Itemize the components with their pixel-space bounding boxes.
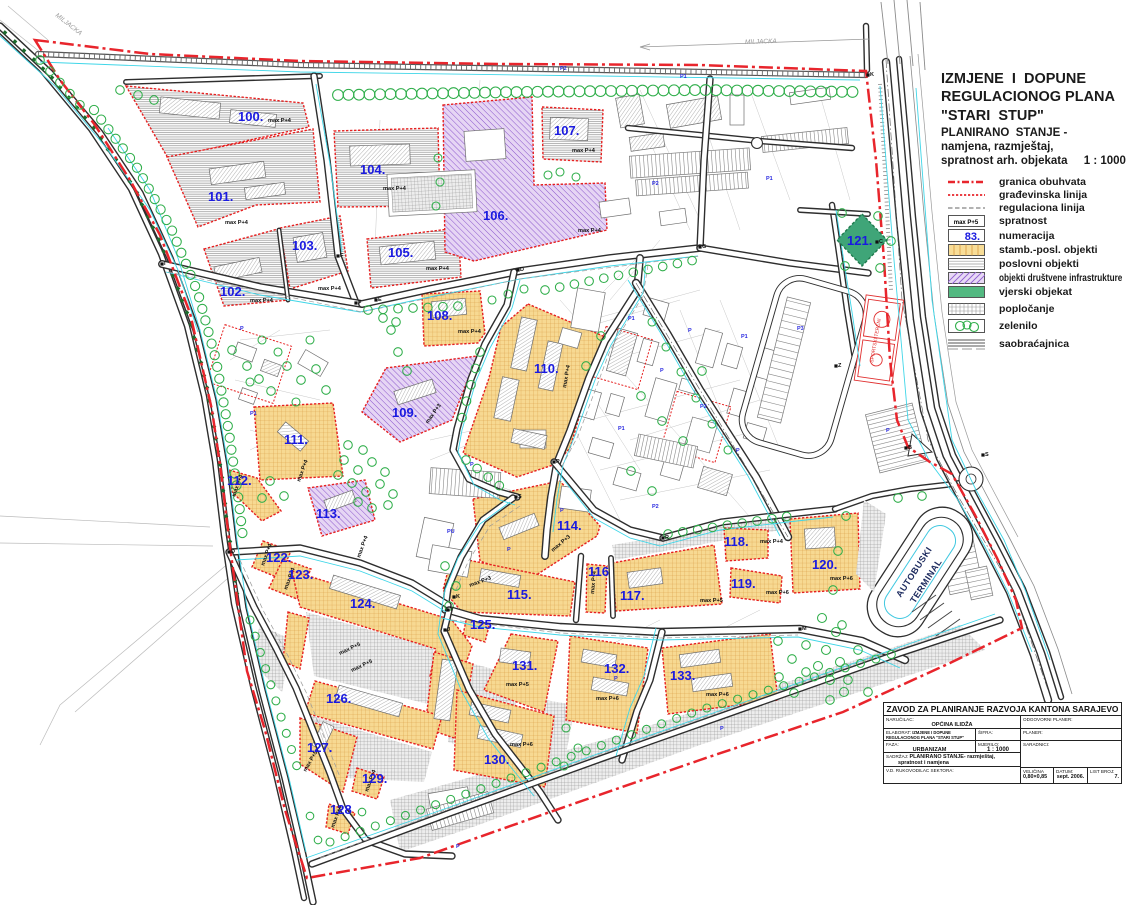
svg-text:max P+6: max P+6 <box>706 692 729 698</box>
svg-text:117.: 117. <box>620 588 645 603</box>
svg-text:P: P <box>507 547 511 553</box>
svg-text:105.: 105. <box>388 245 413 260</box>
svg-text:P3: P3 <box>797 326 804 332</box>
svg-text:max P+6: max P+6 <box>596 696 619 702</box>
svg-text:P: P <box>456 844 460 850</box>
svg-text:max P+4: max P+4 <box>572 148 596 154</box>
svg-text:126.: 126. <box>326 691 351 706</box>
svg-text:P2: P2 <box>652 504 659 510</box>
svg-text:max P+4: max P+4 <box>458 329 482 335</box>
svg-text:133.: 133. <box>670 668 695 683</box>
svg-text:107.: 107. <box>554 123 579 138</box>
svg-text:max P+4: max P+4 <box>225 220 249 226</box>
svg-text:P: P <box>560 508 564 514</box>
svg-text:103.: 103. <box>292 238 317 253</box>
svg-text:max P+6: max P+6 <box>830 576 853 582</box>
svg-text:P1: P1 <box>741 334 748 340</box>
svg-text:K: K <box>456 594 460 600</box>
svg-text:C: C <box>879 239 883 245</box>
svg-text:max P+5: max P+5 <box>954 220 979 226</box>
svg-text:P1: P1 <box>628 316 635 322</box>
svg-text:122.: 122. <box>266 550 291 565</box>
svg-text:114.: 114. <box>557 518 582 533</box>
svg-text:104.: 104. <box>360 162 385 177</box>
svg-text:111.: 111. <box>284 432 308 447</box>
svg-text:max P+4: max P+4 <box>356 534 370 558</box>
svg-text:max P+4: max P+4 <box>268 118 292 124</box>
svg-text:J: J <box>447 627 450 633</box>
svg-text:P: P <box>240 326 244 332</box>
svg-text:MILJACKA: MILJACKA <box>745 38 777 46</box>
svg-text:max P+4: max P+4 <box>426 266 450 272</box>
svg-text:max P+6: max P+6 <box>510 742 533 748</box>
svg-text:127.: 127. <box>307 740 332 755</box>
svg-text:113.: 113. <box>316 506 341 521</box>
svg-text:PU: PU <box>447 529 455 535</box>
svg-text:P1: P1 <box>618 426 625 432</box>
svg-text:max P+5: max P+5 <box>506 682 529 688</box>
svg-text:max P+5: max P+5 <box>700 598 723 604</box>
svg-text:108.: 108. <box>427 308 452 323</box>
svg-text:P: P <box>736 448 740 454</box>
svg-text:128: 128 <box>330 802 352 817</box>
svg-text:G: G <box>702 244 706 250</box>
svg-text:MILJACKA: MILJACKA <box>54 12 83 37</box>
svg-text:K: K <box>870 72 874 78</box>
svg-text:130.: 130. <box>484 752 509 767</box>
svg-text:max P+4: max P+4 <box>383 186 407 192</box>
svg-text:P1: P1 <box>680 74 687 80</box>
svg-text:129.: 129. <box>362 771 387 786</box>
svg-text:100.: 100. <box>238 109 263 124</box>
svg-text:131.: 131. <box>512 658 537 673</box>
svg-text:125.: 125. <box>470 617 495 632</box>
svg-text:E: E <box>378 297 382 303</box>
svg-text:118.: 118. <box>724 534 749 549</box>
svg-text:Z: Z <box>838 363 842 369</box>
svg-text:102.: 102. <box>220 284 245 299</box>
svg-text:max P+4: max P+4 <box>760 539 784 545</box>
svg-text:D: D <box>231 549 235 555</box>
svg-text:P2: P2 <box>700 404 707 410</box>
svg-text:max P+4: max P+4 <box>318 286 342 292</box>
svg-text:P: P <box>886 428 890 434</box>
svg-text:P: P <box>688 328 692 334</box>
svg-text:112.: 112. <box>227 473 252 488</box>
svg-text:110.: 110. <box>534 361 559 376</box>
svg-text:S: S <box>518 494 522 500</box>
svg-text:132.: 132. <box>604 661 629 676</box>
svg-text:B: B <box>908 445 912 451</box>
svg-text:121.: 121. <box>847 233 872 248</box>
svg-text:101.: 101. <box>208 189 233 204</box>
svg-text:124.: 124. <box>350 596 375 611</box>
svg-text:120.: 120. <box>812 557 837 572</box>
svg-text:109.: 109. <box>392 405 417 420</box>
svg-text:116: 116 <box>588 564 609 579</box>
svg-text:P2: P2 <box>652 181 659 187</box>
svg-text:P1: P1 <box>766 176 773 182</box>
svg-text:P1: P1 <box>250 411 257 417</box>
svg-text:P: P <box>720 726 724 732</box>
svg-text:R: R <box>665 535 669 541</box>
svg-text:P: P <box>470 462 474 468</box>
svg-text:max P+6: max P+6 <box>766 590 789 596</box>
svg-text:V: V <box>450 607 454 613</box>
svg-text:M: M <box>802 626 807 632</box>
svg-text:P: P <box>660 368 664 374</box>
svg-text:83.: 83. <box>965 231 980 242</box>
svg-text:106.: 106. <box>483 208 508 223</box>
svg-text:S: S <box>985 452 989 458</box>
svg-text:D: D <box>520 267 524 273</box>
svg-text:P: P <box>614 676 618 682</box>
svg-text:115.: 115. <box>507 587 532 602</box>
svg-text:max P+4: max P+4 <box>250 298 274 304</box>
svg-text:P2: P2 <box>560 66 567 72</box>
svg-text:119.: 119. <box>731 576 756 591</box>
svg-text:123.: 123. <box>288 567 313 582</box>
svg-text:P: P <box>556 459 560 465</box>
svg-text:max P+4: max P+4 <box>578 228 602 234</box>
